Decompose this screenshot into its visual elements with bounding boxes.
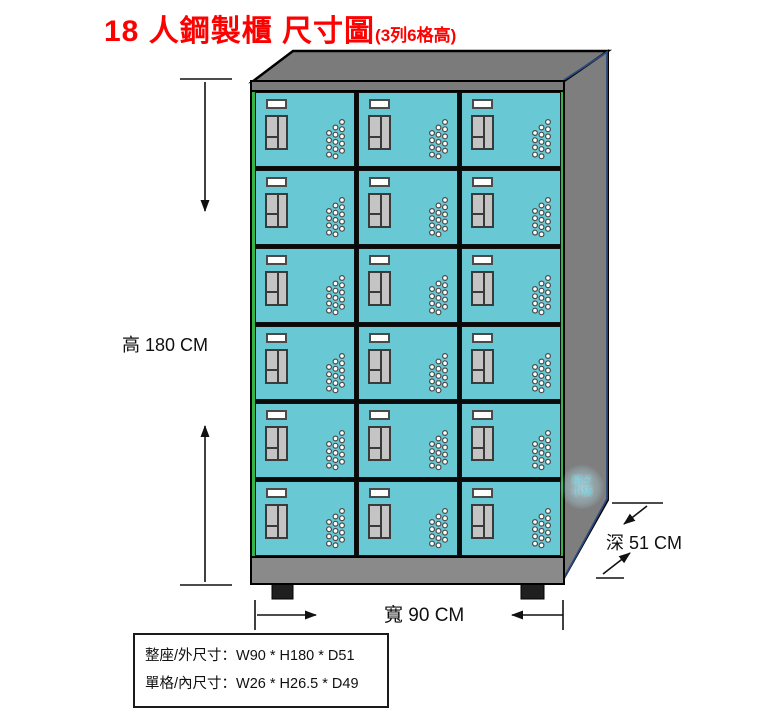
door-vent-holes-icon bbox=[324, 275, 350, 321]
watermark-line2: 小舖 bbox=[572, 487, 592, 498]
locker-door bbox=[358, 403, 458, 478]
door-nameplate bbox=[472, 333, 493, 343]
door-vent-holes-icon bbox=[427, 353, 453, 399]
cabinet-base-rail bbox=[252, 556, 563, 583]
locker-door bbox=[358, 248, 458, 323]
door-vent-holes-icon bbox=[427, 197, 453, 243]
width-dimension-label: 寬 90 CM bbox=[384, 600, 464, 627]
locker-door bbox=[358, 481, 458, 556]
depth-dimension-label: 深 51 CM bbox=[606, 529, 682, 555]
locker-door bbox=[255, 326, 355, 401]
door-vent-holes-icon bbox=[324, 508, 350, 554]
watermark-line1: 櫃子 bbox=[572, 476, 592, 487]
door-vent-holes-icon bbox=[324, 197, 350, 243]
spec-outer-dimensions: 整座/外尺寸：W90 * H180 * D51 bbox=[145, 642, 377, 670]
locker-door bbox=[358, 326, 458, 401]
door-vent-holes-icon bbox=[530, 119, 556, 165]
door-handle-lock bbox=[368, 349, 391, 384]
door-vent-holes-icon bbox=[427, 119, 453, 165]
door-nameplate bbox=[369, 488, 390, 498]
door-handle-lock bbox=[265, 193, 288, 228]
door-nameplate bbox=[266, 410, 287, 420]
door-vent-holes-icon bbox=[530, 353, 556, 399]
locker-door bbox=[255, 92, 355, 167]
door-nameplate bbox=[472, 99, 493, 109]
door-handle-lock bbox=[368, 193, 391, 228]
door-grid bbox=[252, 92, 563, 556]
door-nameplate bbox=[266, 99, 287, 109]
locker-door bbox=[461, 481, 561, 556]
door-nameplate bbox=[369, 410, 390, 420]
door-nameplate bbox=[266, 255, 287, 265]
door-handle-lock bbox=[265, 349, 288, 384]
door-nameplate bbox=[472, 177, 493, 187]
door-handle-lock bbox=[265, 271, 288, 306]
door-handle-lock bbox=[471, 193, 494, 228]
locker-door bbox=[461, 248, 561, 323]
door-nameplate bbox=[266, 333, 287, 343]
locker-door bbox=[255, 170, 355, 245]
door-handle-lock bbox=[471, 115, 494, 150]
door-vent-holes-icon bbox=[324, 353, 350, 399]
spec-inner-dimensions: 單格/內尺寸：W26 * H26.5 * D49 bbox=[145, 670, 377, 698]
locker-door bbox=[461, 326, 561, 401]
door-handle-lock bbox=[265, 504, 288, 539]
door-vent-holes-icon bbox=[324, 430, 350, 476]
door-vent-holes-icon bbox=[530, 197, 556, 243]
door-nameplate bbox=[369, 255, 390, 265]
cabinet-front-face bbox=[250, 80, 565, 585]
cabinet-top-rail bbox=[252, 82, 563, 92]
door-vent-holes-icon bbox=[530, 508, 556, 554]
door-nameplate bbox=[472, 410, 493, 420]
door-handle-lock bbox=[265, 115, 288, 150]
cabinet-foot-right bbox=[521, 584, 544, 599]
locker-door bbox=[461, 170, 561, 245]
door-nameplate bbox=[369, 333, 390, 343]
door-nameplate bbox=[472, 488, 493, 498]
door-handle-lock bbox=[471, 504, 494, 539]
height-dimension-label: 高 180 CM bbox=[122, 331, 208, 357]
door-handle-lock bbox=[471, 349, 494, 384]
locker-door bbox=[461, 403, 561, 478]
shop-watermark: 櫃子 小舖 bbox=[560, 465, 604, 509]
door-nameplate bbox=[472, 255, 493, 265]
door-vent-holes-icon bbox=[530, 430, 556, 476]
door-vent-holes-icon bbox=[427, 508, 453, 554]
door-vent-holes-icon bbox=[530, 275, 556, 321]
door-handle-lock bbox=[471, 271, 494, 306]
door-nameplate bbox=[369, 177, 390, 187]
locker-door bbox=[358, 92, 458, 167]
cabinet-foot-left bbox=[272, 584, 293, 599]
door-nameplate bbox=[266, 177, 287, 187]
locker-door bbox=[461, 92, 561, 167]
door-handle-lock bbox=[368, 271, 391, 306]
door-handle-lock bbox=[368, 504, 391, 539]
spec-box: 整座/外尺寸：W90 * H180 * D51 單格/內尺寸：W26 * H26… bbox=[133, 633, 389, 708]
locker-door bbox=[255, 481, 355, 556]
locker-door bbox=[255, 248, 355, 323]
door-nameplate bbox=[369, 99, 390, 109]
cabinet-top-face bbox=[252, 51, 608, 82]
locker-door bbox=[358, 170, 458, 245]
door-vent-holes-icon bbox=[427, 430, 453, 476]
locker-door bbox=[255, 403, 355, 478]
door-handle-lock bbox=[368, 426, 391, 461]
door-handle-lock bbox=[265, 426, 288, 461]
door-nameplate bbox=[266, 488, 287, 498]
door-vent-holes-icon bbox=[324, 119, 350, 165]
door-handle-lock bbox=[368, 115, 391, 150]
door-vent-holes-icon bbox=[427, 275, 453, 321]
door-handle-lock bbox=[471, 426, 494, 461]
